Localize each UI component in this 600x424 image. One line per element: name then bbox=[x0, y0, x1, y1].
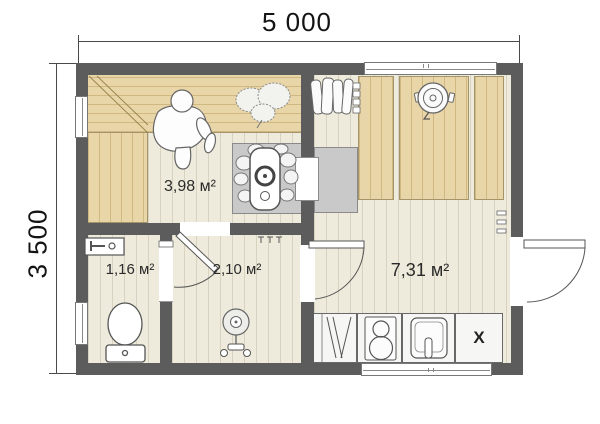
rest-area-label: 7,31 м² bbox=[360, 260, 480, 281]
wc-area-label: 1,16 м² bbox=[80, 261, 180, 278]
wc-sink-icon bbox=[85, 238, 124, 255]
door-sauna-shower bbox=[174, 232, 218, 287]
toilet-icon bbox=[106, 303, 145, 362]
door-wc-leaf bbox=[159, 241, 173, 247]
door-shower-rest bbox=[309, 241, 364, 299]
clothes-hooks-icon bbox=[353, 83, 360, 113]
shower-area-label: 2,10 м² bbox=[187, 261, 287, 278]
sauna-stove-icon bbox=[234, 144, 298, 210]
hob-icon bbox=[365, 317, 396, 360]
bench-corner-lines bbox=[89, 76, 148, 133]
kitchen-unit-x: X bbox=[455, 313, 503, 363]
dish-dryer-icon bbox=[322, 314, 351, 362]
sauna-area-label: 3,98 м² bbox=[140, 178, 240, 196]
plant-icon bbox=[236, 83, 290, 128]
kitchen-sink-icon bbox=[411, 318, 447, 358]
shower-head-icon bbox=[221, 309, 251, 357]
person-icon bbox=[153, 90, 217, 169]
door-entrance bbox=[524, 240, 585, 302]
entry-hooks-icon bbox=[497, 211, 506, 233]
cabinet-x-label: X bbox=[473, 328, 484, 348]
towel-hooks-icon bbox=[258, 237, 282, 243]
clothes-rack-icon bbox=[310, 78, 353, 115]
fixtures-overlay bbox=[0, 0, 600, 424]
round-basin-icon bbox=[414, 83, 455, 119]
floor-plan: 5 000 3 500 X 3,98 м² 1 bbox=[0, 0, 600, 424]
